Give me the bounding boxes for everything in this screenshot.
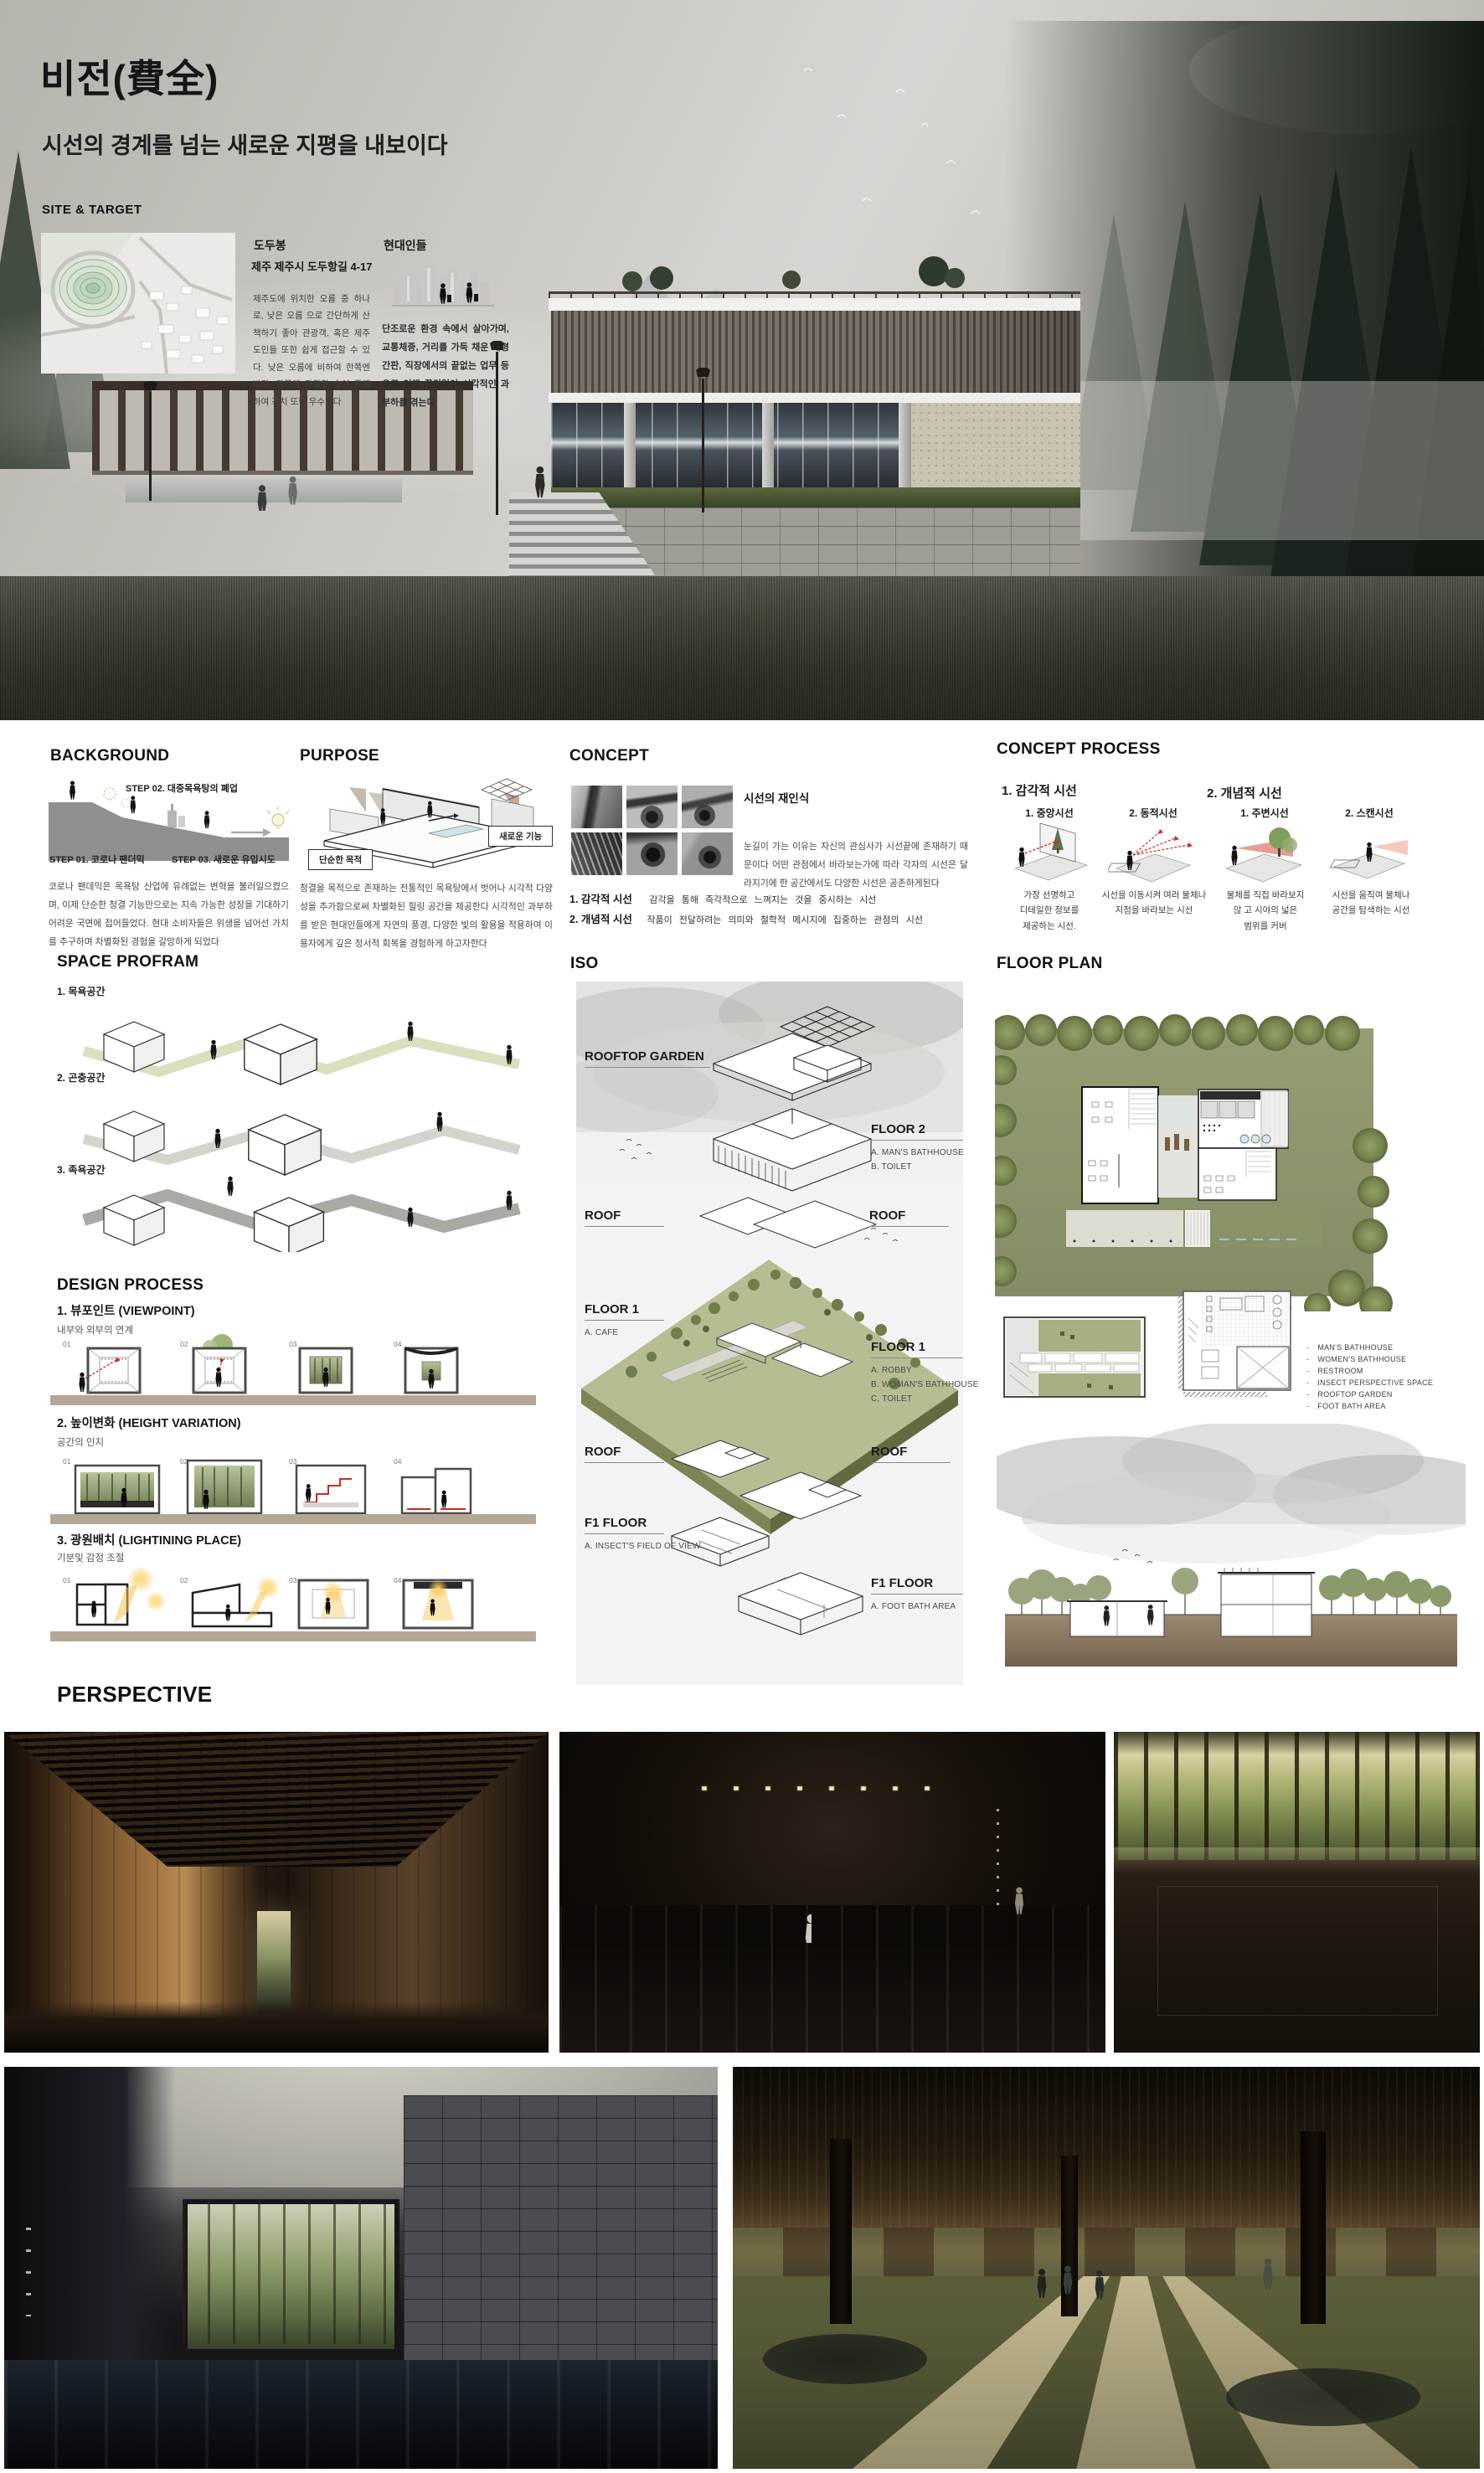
column	[1301, 2131, 1326, 2324]
dp-panel	[188, 1347, 250, 1395]
cp-caption: 시선을 이동시켜 여러 물체나 지점을 바라보는 시선	[1095, 888, 1213, 919]
site-name: 도두봉	[254, 237, 286, 254]
concept-item-2: 2. 개념적 시선 작품이 전달하려는 의미와 철학적 메시지에 집중하는 관점…	[569, 910, 923, 927]
background-body: 코로나 팬데믹은 목욕탕 산업에 유례없는 변혁을 불러일으켰으며, 이제 단순…	[49, 878, 289, 952]
cp-diagram-dynamic-gaze	[1108, 817, 1197, 885]
iso-label-floor1: FLOOR 1	[871, 1340, 963, 1358]
eye-photo	[682, 786, 733, 828]
visitors	[1017, 2248, 1151, 2306]
section-elevation-drawing	[997, 1424, 1466, 1685]
board-title: 비전(費全)	[40, 49, 219, 104]
dp-panel-num: 04	[394, 1576, 401, 1584]
site-target-heading: SITE & TARGET	[42, 203, 142, 217]
pond	[763, 2334, 927, 2384]
board-subtitle: 시선의 경계를 넘는 새로운 지평을 내보이다	[42, 127, 448, 160]
iso-f1-line: A. INSECT'S FIELD OF VIEW	[585, 1539, 701, 1553]
iso-label-floor2: FLOOR 2	[871, 1122, 963, 1141]
purpose-label-old: 단순한 목적	[308, 849, 373, 870]
dp-panel-num: 03	[289, 1576, 296, 1584]
concept-item-1-label: 1. 감각적 시선	[569, 894, 632, 905]
dp-section-1-title: 1. 뷰포인트 (VIEWPOINT)	[57, 1301, 195, 1319]
site-map	[41, 233, 235, 374]
dp-panel	[295, 1347, 357, 1395]
dp-panel-light	[75, 1576, 159, 1631]
plan-legend: MAN'S BATHHOUSE WOMEN'S BATHHOUSE RESTRO…	[1306, 1342, 1433, 1412]
background-heading: BACKGROUND	[50, 747, 169, 765]
dp-panel-num: 01	[63, 1340, 70, 1348]
iso-label-roof: ROOF	[869, 1208, 949, 1227]
iso-floor1-line: B. WOMAN'S BATHHOUSE	[871, 1378, 979, 1392]
target-description: 단조로운 환경 속에서 살아가며, 교통체증, 거리를 가득 채운 대형간판, …	[382, 320, 509, 412]
pond	[1226, 2368, 1420, 2426]
target-name: 현대인들	[384, 237, 427, 254]
concept-process-heading: CONCEPT PROCESS	[997, 740, 1161, 759]
water-spouts	[26, 2228, 31, 2316]
dp-section-3-title: 3. 광원배치 (LIGHTINING PLACE)	[57, 1531, 241, 1548]
iso-label-roof: ROOF	[585, 1208, 664, 1227]
legend-item: RESTROOM	[1306, 1366, 1433, 1377]
rooftop-plan	[1177, 1290, 1294, 1401]
iso-heading: ISO	[570, 955, 599, 973]
iso-label-f1: F1 FLOOR	[585, 1516, 664, 1534]
bath-water	[4, 2360, 718, 2469]
perspective-photo-pool-hall	[559, 1732, 1105, 2053]
site-plan-drawing	[995, 1012, 1466, 1311]
iso-label-roof: ROOF	[871, 1445, 951, 1463]
space-program-heading: SPACE PROFRAM	[57, 953, 198, 971]
purpose-heading: PURPOSE	[300, 747, 379, 765]
visitor	[1241, 2236, 1291, 2295]
presentation-board: 비전(費全) 시선의 경계를 넘는 새로운 지평을 내보이다 SITE & TA…	[0, 0, 1484, 2473]
design-process-heading: DESIGN PROCESS	[57, 1276, 204, 1295]
rooftop-trees	[582, 256, 1051, 291]
legend-item: FOOT BATH AREA	[1306, 1401, 1433, 1412]
hero-people	[234, 444, 586, 511]
dp-panel-num: 01	[63, 1457, 70, 1466]
dp-panel	[400, 1467, 472, 1516]
dp-panel-light	[402, 1579, 474, 1631]
concept-body: 눈길이 가는 이유는 자신의 관심사가 시선끝에 존재하기 때문이다 어떤 관점…	[744, 837, 968, 893]
lamp-post	[702, 379, 704, 513]
iso-label-roof: ROOF	[585, 1445, 664, 1463]
dp-ground-strip	[50, 1395, 536, 1405]
iso-label-rooftop-garden: ROOFTOP GARDEN	[585, 1049, 710, 1068]
iso-floor2-line: A. MAN'S BATHHOUSE	[871, 1146, 964, 1160]
eye-photo	[682, 832, 733, 875]
cp-caption: 물체를 직접 바라보지 않 고 시야의 넓은 범위를 커버	[1211, 888, 1320, 934]
iso-floor2-line: B. TOILET	[871, 1160, 912, 1174]
concept-item-1: 1. 감각적 시선 감각을 통해 즉각적으로 느껴지는 것을 중시하는 시선	[569, 890, 876, 907]
dp-panel-light	[191, 1581, 275, 1631]
eye-photo	[571, 832, 622, 875]
cp-diagram-scan-gaze	[1324, 817, 1413, 885]
cp-diagram-peripheral-gaze	[1219, 817, 1308, 885]
iso-label-floor1: FLOOR 1	[585, 1302, 664, 1321]
iso-floor1-line: C, TOILET	[871, 1392, 912, 1406]
concept-heading: CONCEPT	[569, 747, 649, 765]
legend-item: WOMEN'S BATHHOUSE	[1306, 1354, 1433, 1365]
eye-photo	[626, 786, 678, 828]
seagulls-icon	[779, 46, 1013, 247]
cp-caption: 가장 선명하고 디테일한 정보를 제공하는 시선.	[995, 888, 1104, 934]
iso-f1-line: A. FOOT BATH AREA	[871, 1600, 956, 1614]
eye-photo	[571, 786, 622, 828]
dp-section-3-subtitle: 기분및 감정 조절	[57, 1551, 124, 1564]
purpose-body: 청결을 목적으로 존재하는 전통적인 목욕탕에서 벗어나 시각적 다양성을 추가…	[300, 879, 553, 954]
ceiling-lights	[702, 1786, 942, 1790]
background-step-2: STEP 02. 대중목욕탕의 폐업	[126, 781, 238, 795]
cp-diagram-central-gaze	[1005, 817, 1094, 885]
hero-section: 비전(費全) 시선의 경계를 넘는 새로운 지평을 내보이다 SITE & TA…	[0, 0, 1484, 720]
cp-group-2: 2. 개념적 시선	[1207, 784, 1282, 801]
bather-figure	[778, 1889, 812, 1943]
city-skyline-icon	[392, 256, 494, 312]
dp-section-1-subtitle: 내부와 외부의 연계	[57, 1323, 133, 1337]
cp-caption: 시선을 움직여 물체나 공간을 탐색하는 시선	[1317, 888, 1425, 919]
bather-figure	[1002, 1879, 1027, 1919]
dp-panel	[400, 1347, 462, 1395]
site-address: 제주 제주시 도두항길 4-17	[251, 258, 373, 274]
dp-panel-num: 04	[394, 1457, 401, 1466]
legend-item: INSECT PERSPECTIVE SPACE	[1306, 1378, 1433, 1388]
cp-group-1: 1. 감각적 시선	[1002, 781, 1077, 799]
iso-floor1-line: A. ROBBY	[871, 1363, 912, 1378]
dp-panel-light	[297, 1579, 369, 1631]
perspective-photo-corridor	[4, 1732, 549, 2053]
iso-label-f1: F1 FLOOR	[871, 1576, 963, 1595]
dp-panel	[186, 1459, 263, 1516]
concept-eye-grid	[571, 786, 734, 875]
concept-item-1-desc: 감각을 통해 즉각적으로 느껴지는 것을 중시하는 시선	[649, 895, 876, 905]
concept-subheading: 시선의 재인식	[744, 789, 809, 806]
dp-ground-strip	[50, 1514, 536, 1524]
dp-panel	[295, 1464, 367, 1516]
concept-item-2-desc: 작품이 전달하려는 의미와 철학적 메시지에 집중하는 관점의 시선	[647, 915, 923, 925]
background-step-3: STEP 03. 새로운 유입시도	[172, 853, 276, 866]
perspective-photo-stone-bath	[4, 2067, 718, 2469]
eye-photo	[626, 832, 678, 875]
legend-item: ROOFTOP GARDEN	[1306, 1389, 1433, 1400]
dp-section-2-title: 2. 높이변화 (HEIGHT VARIATION)	[57, 1414, 241, 1431]
legend-item: MAN'S BATHHOUSE	[1306, 1342, 1433, 1353]
dp-panel-num: 02	[180, 1576, 188, 1584]
background-step-1: STEP 01. 코로나 팬더믹	[49, 853, 145, 866]
lamp-post	[149, 392, 152, 501]
dp-panel	[74, 1464, 161, 1516]
concept-item-2-label: 2. 개념적 시선	[569, 914, 632, 925]
dp-panel-num: 01	[63, 1576, 70, 1584]
space-program-diagrams	[50, 992, 536, 1252]
dp-ground-strip	[50, 1631, 536, 1641]
iso-floor1-line: A. CAFE	[585, 1326, 618, 1340]
dp-section-2-subtitle: 공간의 인지	[57, 1435, 104, 1449]
perspective-photo-underground-hall	[733, 2067, 1480, 2469]
dp-panel-num: 02	[180, 1340, 188, 1348]
floor-plan-heading: FLOOR PLAN	[997, 955, 1103, 973]
column	[830, 2139, 852, 2324]
purpose-label-new: 새로운 기능	[488, 826, 553, 847]
foreground-terrain	[0, 576, 1484, 720]
perspective-heading: PERSPECTIVE	[57, 1682, 212, 1708]
site-description: 제주도에 위치한 오름 중 하나로, 낮은 오름 으로 간단하게 산책하기 좋아…	[253, 291, 370, 410]
insect-space-plan	[1003, 1316, 1146, 1398]
dp-panel	[80, 1347, 142, 1395]
perspective-photo-forest-room	[1114, 1732, 1480, 2053]
